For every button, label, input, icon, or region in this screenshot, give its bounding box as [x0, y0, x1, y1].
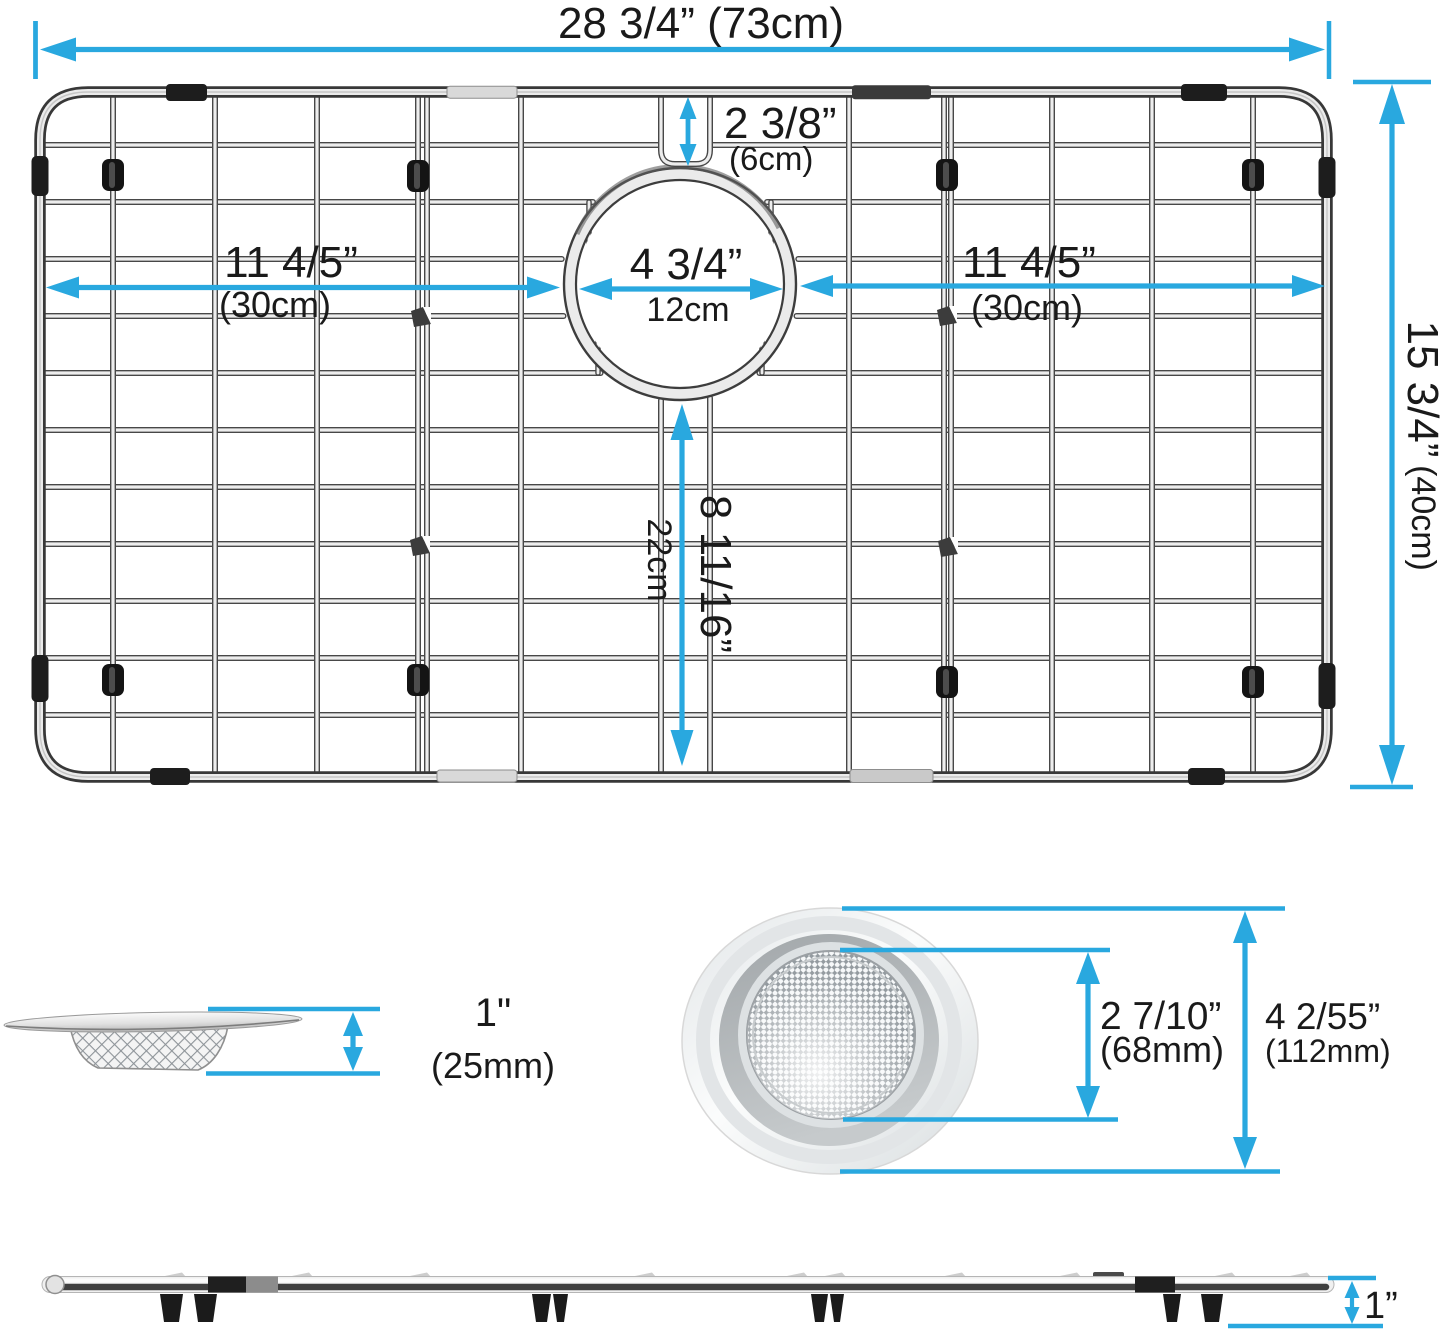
svg-text:(40cm): (40cm) — [1404, 465, 1442, 571]
svg-text:(112mm): (112mm) — [1265, 1033, 1391, 1069]
svg-text:(25mm): (25mm) — [431, 1045, 555, 1086]
svg-text:1": 1" — [475, 991, 511, 1035]
svg-text:(6cm): (6cm) — [729, 140, 813, 177]
svg-text:4 3/4”: 4 3/4” — [630, 240, 743, 289]
svg-text:11 4/5”: 11 4/5” — [962, 238, 1096, 287]
svg-text:8 11/16”: 8 11/16” — [691, 495, 740, 653]
svg-text:(30cm): (30cm) — [971, 287, 1083, 328]
svg-text:(68mm): (68mm) — [1100, 1029, 1224, 1070]
svg-text:28 3/4” (73cm): 28 3/4” (73cm) — [558, 0, 844, 48]
svg-text:4 2/55”: 4 2/55” — [1265, 996, 1380, 1037]
svg-text:(30cm): (30cm) — [219, 284, 331, 325]
svg-text:1”: 1” — [1364, 1285, 1398, 1327]
svg-text:22cm: 22cm — [640, 518, 678, 601]
svg-text:15 3/4”: 15 3/4” — [1398, 321, 1445, 458]
svg-text:11 4/5”: 11 4/5” — [224, 238, 358, 287]
svg-text:12cm: 12cm — [646, 291, 729, 329]
